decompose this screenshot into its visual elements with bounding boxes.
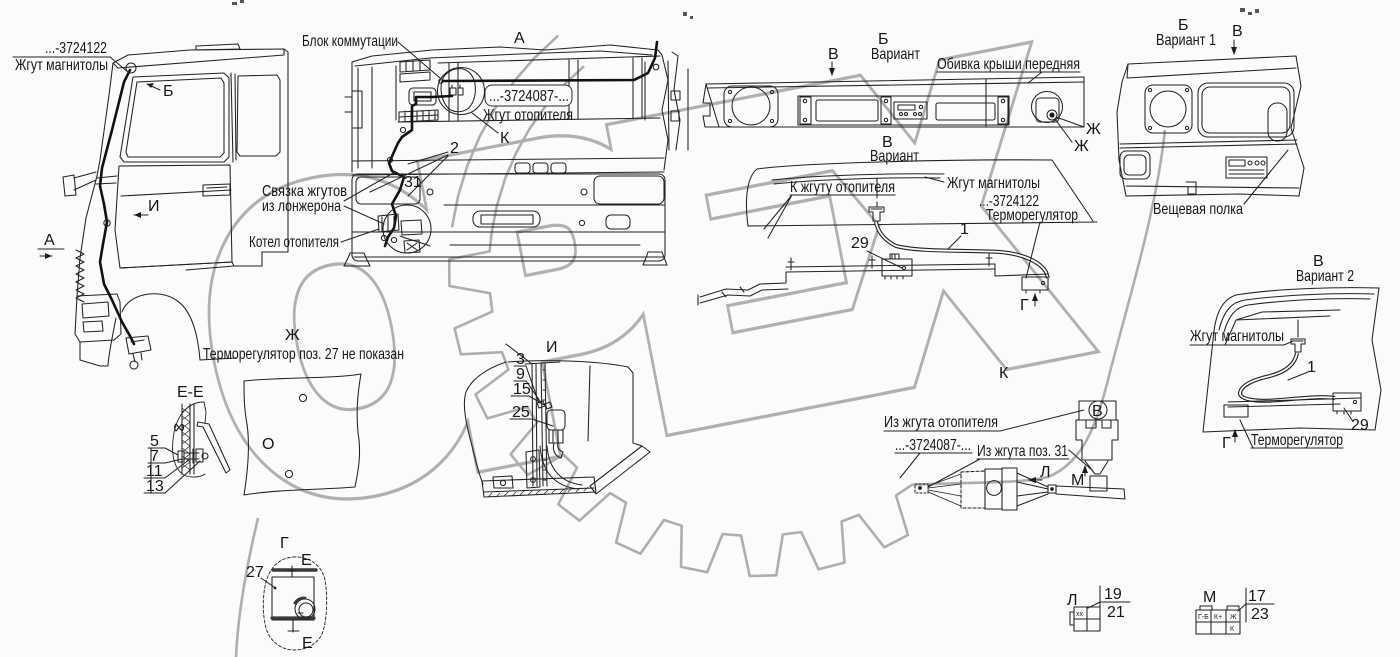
svg-text:А: А (514, 30, 525, 47)
svg-text:Обивка крыши передняя: Обивка крыши передняя (937, 56, 1080, 73)
svg-text:...-3724087-...: ...-3724087-... (489, 88, 569, 105)
svg-text:Из жгута отопителя: Из жгута отопителя (884, 414, 998, 431)
svg-text:Вариант 2: Вариант 2 (1296, 268, 1354, 285)
svg-text:К: К (500, 130, 510, 147)
svg-text:1: 1 (960, 221, 969, 238)
svg-text:Е: Е (301, 552, 312, 569)
svg-text:13: 13 (146, 478, 164, 495)
svg-text:М: М (1071, 472, 1084, 489)
svg-text:Вещевая полка: Вещевая полка (1153, 201, 1243, 218)
svg-text:Терморегулятор: Терморегулятор (986, 207, 1078, 224)
svg-text:Ж: Ж (1074, 138, 1089, 155)
svg-text:17: 17 (1248, 588, 1266, 605)
svg-text:Жгут отопителя: Жгут отопителя (483, 107, 573, 124)
svg-text:В: В (1232, 23, 1243, 40)
svg-text:Г: Г (280, 535, 289, 552)
svg-text:Г: Г (1222, 435, 1231, 452)
svg-text:...-3724122: ...-3724122 (45, 40, 107, 57)
svg-text:И: И (148, 198, 160, 215)
svg-text:Ж: Ж (1086, 121, 1101, 138)
svg-text:Терморегулятор: Терморегулятор (1251, 432, 1343, 449)
svg-text:хх: хх (1076, 611, 1084, 618)
svg-text:К+: К+ (1214, 614, 1222, 621)
svg-text:В: В (1092, 403, 1103, 420)
svg-text:К: К (999, 365, 1009, 382)
svg-text:29: 29 (851, 235, 869, 252)
svg-text:Г: Г (1020, 297, 1029, 314)
svg-text:Вариант 1: Вариант 1 (1156, 32, 1216, 49)
svg-text:Б: Б (163, 83, 174, 100)
svg-text:19: 19 (1104, 586, 1122, 603)
svg-text:Терморегулятор поз. 27 не пока: Терморегулятор поз. 27 не показан (203, 346, 404, 363)
svg-text:1: 1 (1307, 359, 1316, 376)
svg-text:из лонжерона: из лонжерона (262, 198, 341, 215)
svg-text:...-3724087-...: ...-3724087-... (895, 437, 971, 454)
svg-text:2: 2 (450, 140, 459, 157)
svg-text:Л: Л (1040, 464, 1051, 481)
svg-text:Ж: Ж (1230, 614, 1237, 621)
svg-text:Вариант: Вариант (871, 46, 921, 63)
svg-text:В: В (828, 46, 839, 63)
svg-text:Е-Е: Е-Е (177, 384, 204, 401)
svg-text:Г-Б: Г-Б (1198, 614, 1209, 621)
svg-text:Е: Е (302, 635, 313, 652)
svg-text:Жгут магнитолы: Жгут магнитолы (1190, 328, 1284, 345)
svg-text:Блок коммутации: Блок коммутации (302, 33, 398, 50)
svg-text:25: 25 (512, 404, 530, 421)
svg-text:Ж: Ж (285, 327, 300, 344)
svg-text:29: 29 (1351, 417, 1369, 434)
svg-text:Жгут магнитолы: Жгут магнитолы (15, 57, 108, 74)
svg-text:Котел отопителя: Котел отопителя (249, 234, 339, 251)
svg-text:А: А (44, 232, 55, 249)
svg-text:21: 21 (1107, 604, 1125, 621)
svg-text:Л: Л (1067, 592, 1078, 609)
svg-text:Жгут магнитолы: Жгут магнитолы (947, 175, 1040, 192)
svg-text:31: 31 (404, 174, 422, 191)
svg-text:М: М (1203, 589, 1216, 606)
svg-text:Из жгута поз. 31: Из жгута поз. 31 (977, 443, 1068, 460)
svg-text:23: 23 (1251, 606, 1269, 623)
svg-text:О: О (262, 436, 274, 453)
svg-text:И: И (546, 339, 558, 356)
svg-text:К жгуту отопителя: К жгуту отопителя (790, 179, 895, 196)
